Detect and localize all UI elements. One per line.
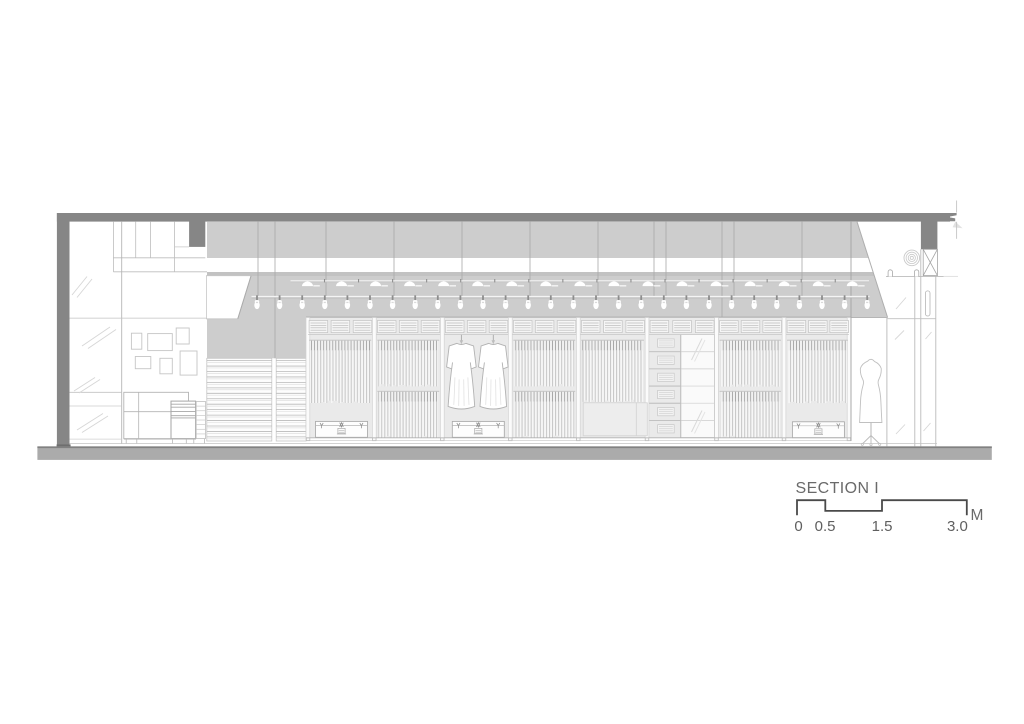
svg-text:SECTION I: SECTION I: [796, 480, 880, 497]
svg-text:3.0: 3.0: [947, 518, 968, 535]
svg-text:1.5: 1.5: [872, 518, 893, 535]
svg-text:M: M: [971, 507, 984, 524]
svg-text:0.5: 0.5: [815, 518, 836, 535]
svg-text:0: 0: [794, 518, 802, 535]
